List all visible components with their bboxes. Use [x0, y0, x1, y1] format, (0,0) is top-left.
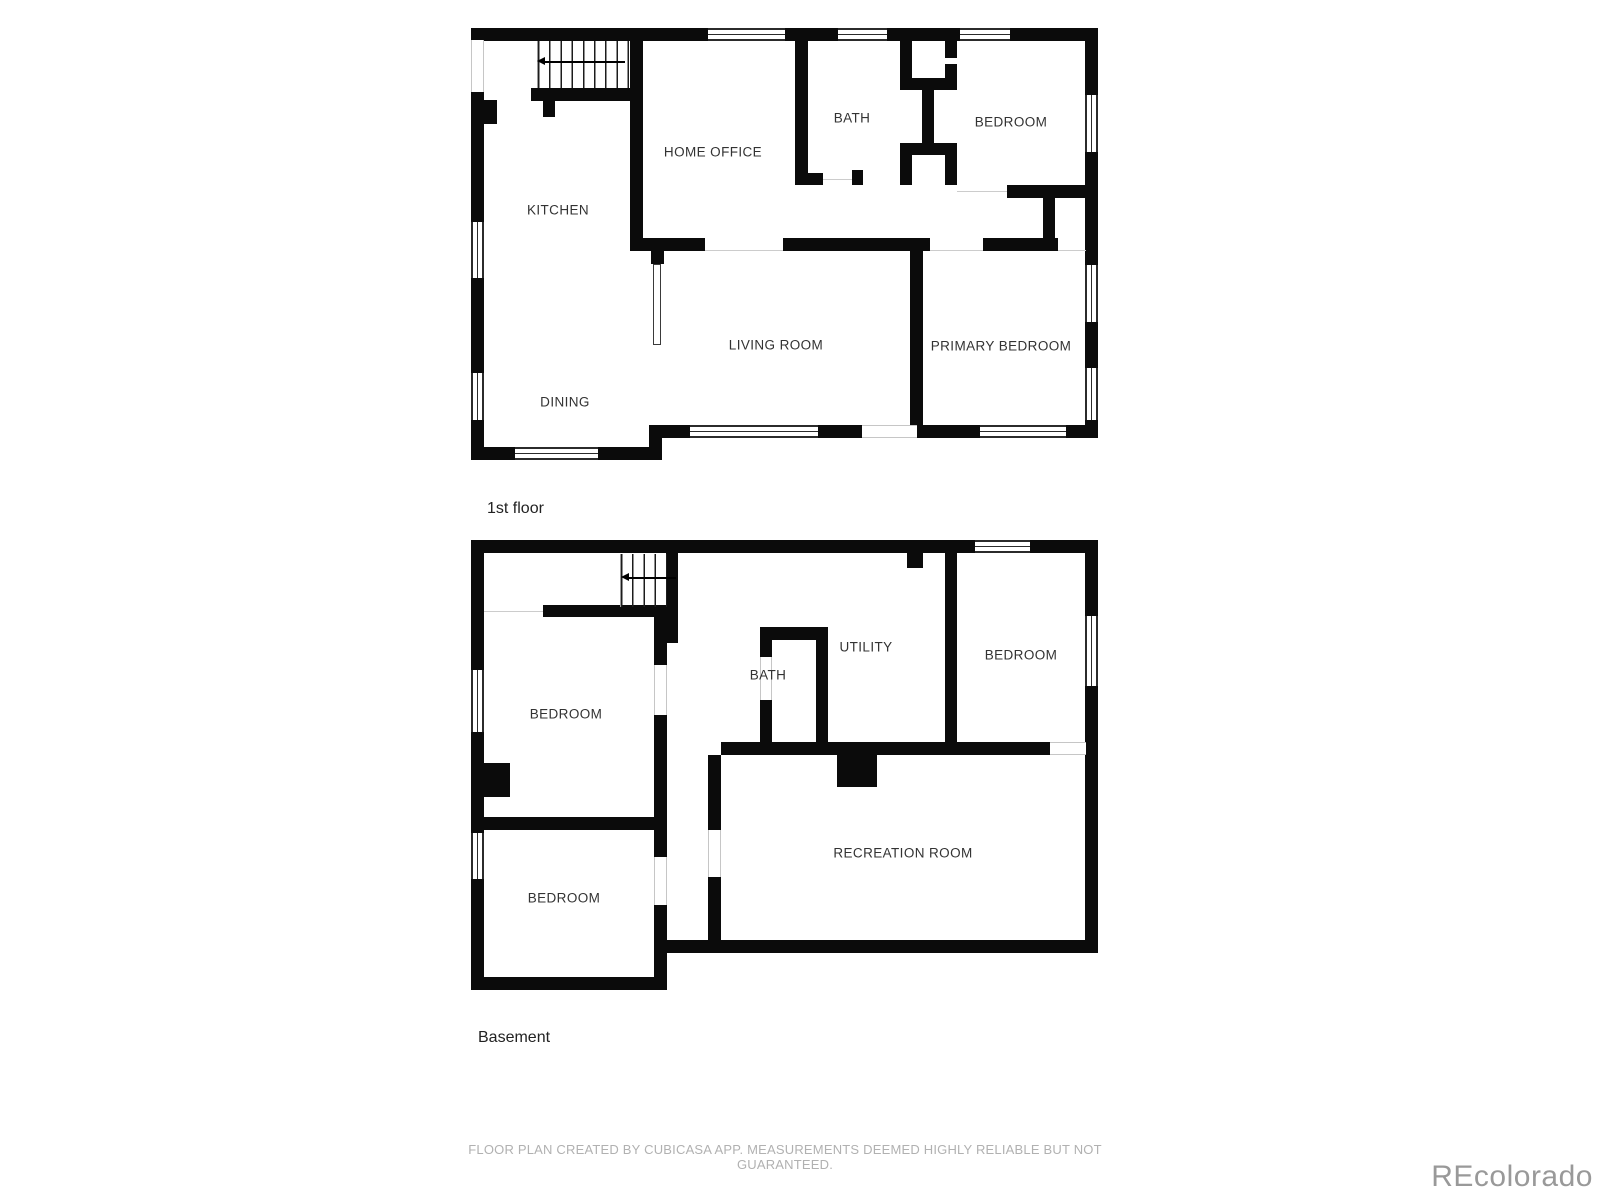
- floor-label-first: 1st floor: [487, 500, 544, 518]
- room-label: LIVING ROOM: [729, 338, 823, 353]
- stair-direction-arrow: [628, 577, 676, 579]
- wall: [484, 763, 510, 797]
- window: [471, 373, 484, 420]
- door-threshold: [1058, 250, 1086, 251]
- wall: [852, 170, 863, 185]
- door-threshold: [484, 611, 543, 612]
- door-opening: [708, 830, 721, 877]
- floor-label-basement: Basement: [478, 1029, 550, 1047]
- window: [471, 833, 484, 879]
- room-label: UTILITY: [839, 640, 892, 655]
- window: [515, 447, 598, 460]
- wall: [654, 715, 667, 857]
- wall: [708, 940, 1098, 953]
- window: [838, 28, 887, 41]
- window: [471, 670, 484, 732]
- wall: [945, 553, 957, 755]
- watermark-recolorado: REcolorado: [1431, 1160, 1593, 1194]
- wall: [760, 627, 772, 657]
- wall: [708, 755, 721, 830]
- staircase-icon: [537, 41, 631, 88]
- wall: [945, 40, 957, 58]
- wall: [666, 553, 678, 643]
- door-opening: [1050, 742, 1086, 755]
- room-label: BEDROOM: [528, 891, 601, 906]
- wall: [543, 101, 555, 117]
- room-label: KITCHEN: [527, 203, 589, 218]
- room-label: BATH: [750, 668, 787, 683]
- door-opening: [654, 857, 667, 905]
- wall: [945, 64, 957, 90]
- stair-arrow-head-icon: [621, 573, 629, 581]
- wall: [907, 553, 923, 568]
- door-opening: [862, 425, 917, 438]
- wall: [630, 40, 643, 251]
- door-threshold: [823, 179, 852, 180]
- floor-plan-page: KITCHENHOME OFFICEBATHBEDROOMLIVING ROOM…: [0, 0, 1600, 1200]
- wall: [783, 238, 930, 251]
- wall: [837, 742, 877, 787]
- wall: [945, 143, 957, 185]
- wall: [630, 238, 705, 251]
- wall: [654, 605, 667, 665]
- room-label: BEDROOM: [985, 648, 1058, 663]
- room-label: RECREATION ROOM: [833, 846, 972, 861]
- wall: [654, 905, 667, 990]
- window: [1085, 368, 1098, 420]
- window: [1085, 616, 1098, 686]
- window: [471, 222, 484, 278]
- room-label: BEDROOM: [975, 115, 1048, 130]
- room-label: BATH: [834, 111, 871, 126]
- wall: [922, 90, 934, 143]
- window: [975, 540, 1030, 553]
- room-label: DINING: [540, 395, 590, 410]
- wall: [531, 88, 632, 101]
- footer-disclaimer-text: FLOOR PLAN CREATED BY CUBICASA APP. MEAS…: [430, 1142, 1140, 1172]
- door-threshold: [930, 250, 983, 251]
- window: [1085, 265, 1098, 322]
- window: [690, 425, 818, 438]
- door-opening: [654, 665, 667, 715]
- room-label: BEDROOM: [530, 707, 603, 722]
- window: [1085, 95, 1098, 152]
- wall: [983, 238, 1058, 251]
- door-opening: [471, 40, 484, 92]
- room-label: PRIMARY BEDROOM: [931, 339, 1072, 354]
- wall: [471, 817, 667, 830]
- stair-arrow-head-icon: [537, 57, 545, 65]
- wall: [1086, 742, 1098, 755]
- wall: [471, 977, 667, 990]
- window: [980, 425, 1066, 438]
- wall: [471, 540, 484, 990]
- wall: [651, 251, 664, 264]
- wall: [910, 238, 923, 438]
- wall: [721, 742, 1050, 755]
- room-label: HOME OFFICE: [664, 145, 762, 160]
- wall: [1043, 185, 1055, 238]
- door-threshold: [705, 250, 783, 251]
- wall: [483, 100, 497, 124]
- door-threshold: [957, 191, 1007, 192]
- stair-direction-arrow: [544, 61, 625, 63]
- room-divider: [653, 264, 661, 345]
- wall: [795, 173, 823, 185]
- wall: [708, 877, 721, 953]
- wall: [795, 40, 808, 185]
- window: [708, 28, 785, 41]
- window: [960, 28, 1010, 41]
- wall: [816, 627, 828, 753]
- wall: [900, 143, 912, 185]
